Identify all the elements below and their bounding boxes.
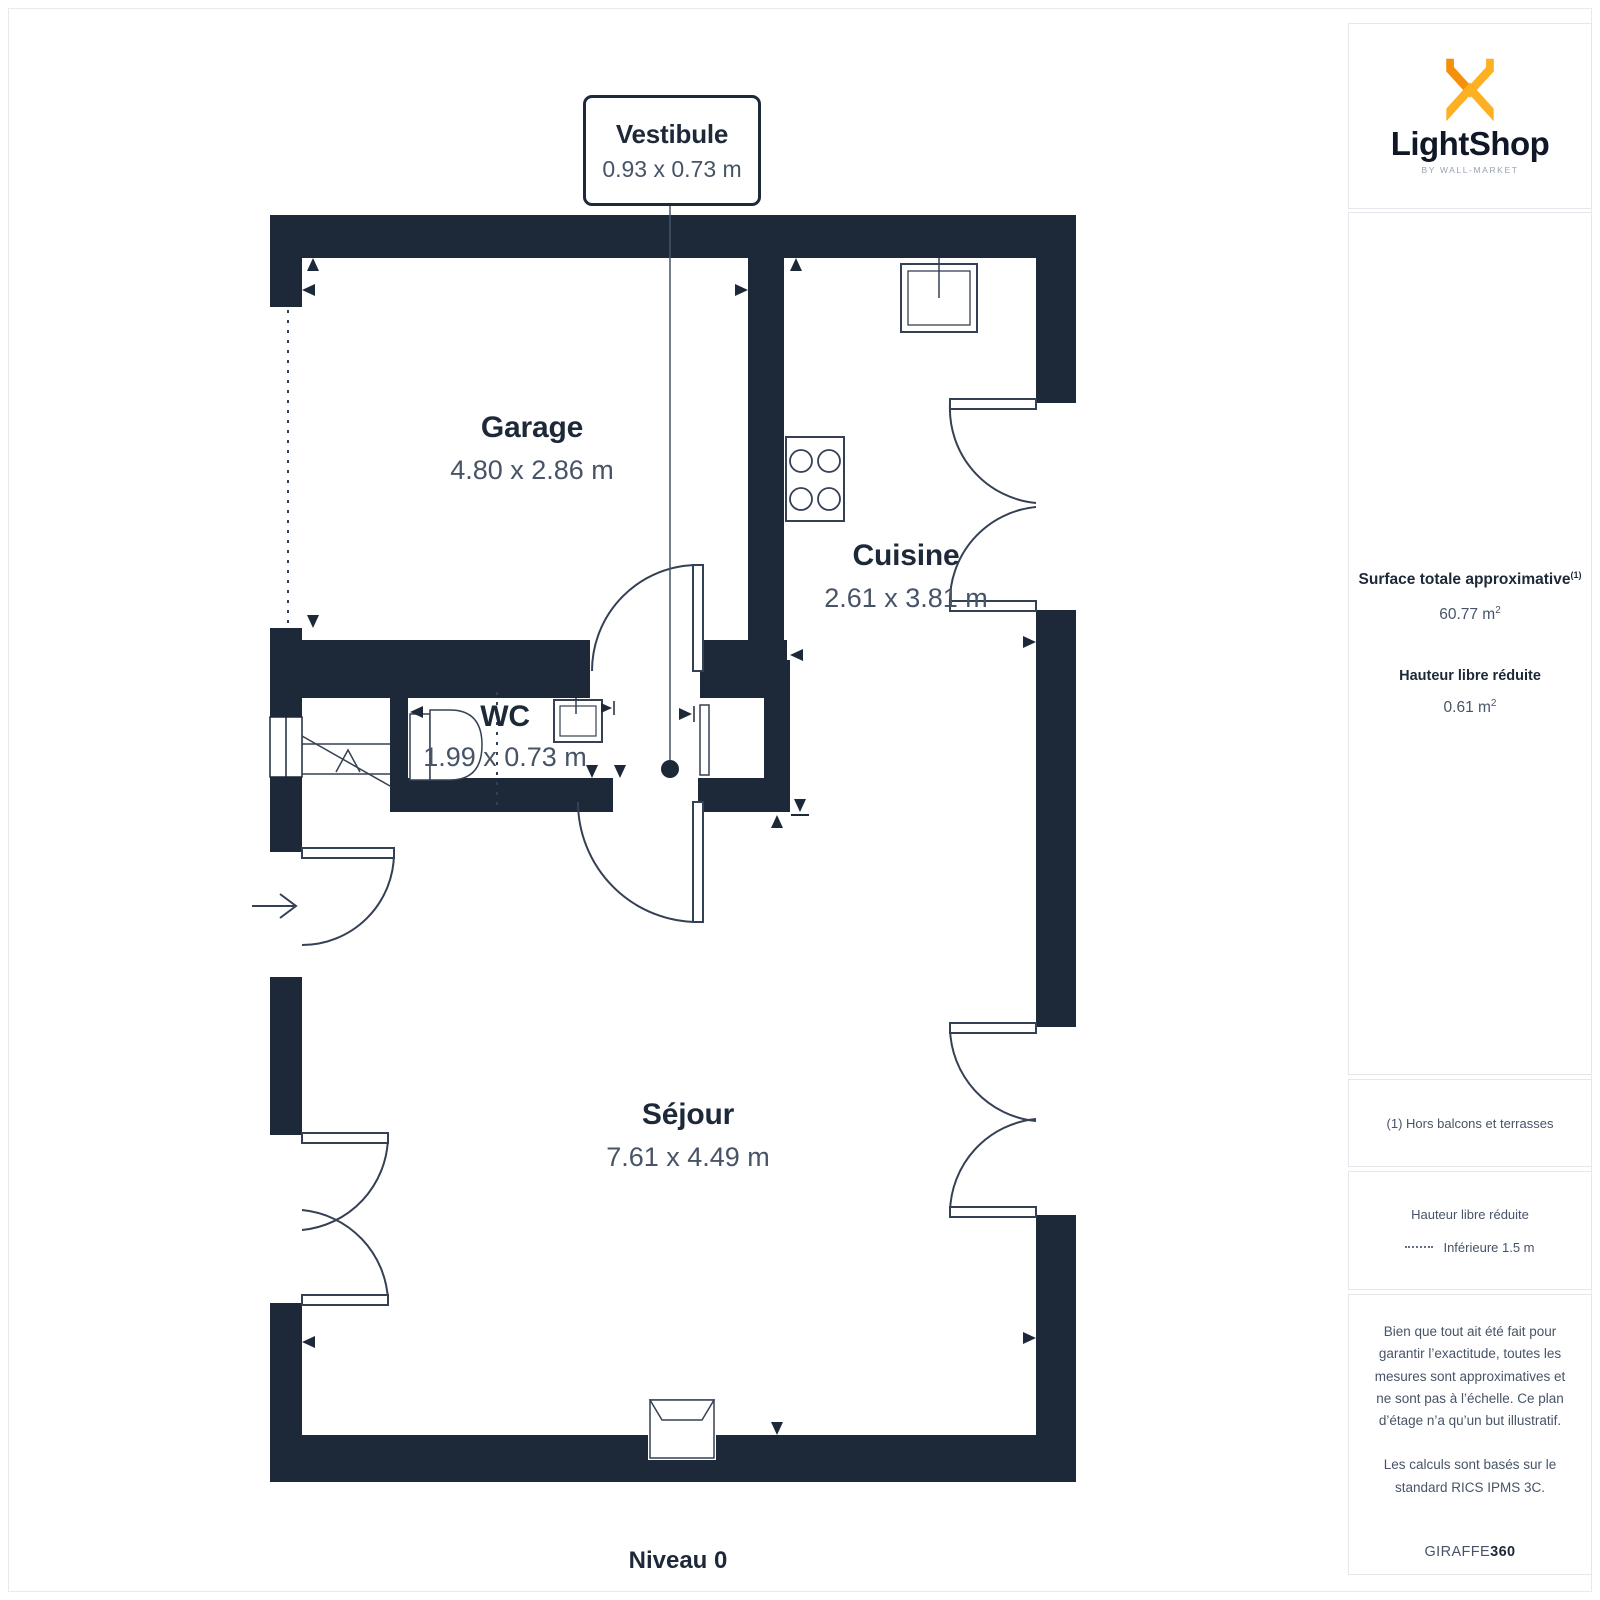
sidebar-disclaimer-box: Bien que tout ait été fait pour garantir… <box>1348 1294 1592 1575</box>
disclaimer-paragraph-2: Les calculs sont basés sur le standard R… <box>1367 1454 1573 1499</box>
legend-title: Hauteur libre réduite <box>1411 1207 1529 1222</box>
room-cuisine-label: Cuisine 2.61 x 3.81 m <box>756 539 1056 614</box>
room-title: Vestibule <box>616 119 728 150</box>
window-left <box>268 717 304 777</box>
room-dims: 2.61 x 3.81 m <box>756 583 1056 614</box>
level-label: Niveau 0 <box>528 1547 828 1575</box>
dotted-line-icon <box>1405 1246 1433 1248</box>
sidebar-footnote-box: (1) Hors balcons et terrasses <box>1348 1079 1592 1167</box>
surface-total-value: 60.77 m2 <box>1439 605 1501 624</box>
disclaimer-paragraph-1: Bien que tout ait été fait pour garantir… <box>1367 1321 1573 1432</box>
room-vestibule-label: Vestibule 0.93 x 0.73 m <box>583 95 761 206</box>
room-garage-label: Garage 4.80 x 2.86 m <box>382 411 682 486</box>
room-title: Cuisine <box>756 539 1056 573</box>
reduced-height-value: 0.61 m2 <box>1444 698 1497 717</box>
entrance-arrow-icon <box>252 894 296 918</box>
vestibule-leader <box>661 200 679 778</box>
brand-tagline: BY WALL-MARKET <box>1421 165 1518 175</box>
sidebar-summary-box: Surface totale approximative(1) 60.77 m2… <box>1348 212 1592 1075</box>
room-title: Garage <box>382 411 682 445</box>
floorplan-page: { "plan": { "level_label": "Niveau 0", "… <box>0 0 1600 1600</box>
room-title: WC <box>355 700 655 734</box>
legend-item: Inférieure 1.5 m <box>1443 1240 1534 1255</box>
surface-total-label: Surface totale approximative(1) <box>1359 570 1582 589</box>
fireplace <box>648 1398 716 1460</box>
kitchen-sink-icon <box>901 258 977 332</box>
lightshop-logo-icon <box>1427 57 1513 123</box>
giraffe360-brand: GIRAFFE360 <box>1367 1541 1573 1565</box>
stove-icon <box>786 437 844 521</box>
room-title: Séjour <box>538 1098 838 1132</box>
room-sejour-label: Séjour 7.61 x 4.49 m <box>538 1098 838 1173</box>
brand-name: LightShop <box>1391 125 1550 163</box>
reduced-height-label: Hauteur libre réduite <box>1399 668 1541 684</box>
room-wc-label: WC 1.99 x 0.73 m <box>355 700 655 773</box>
room-dims: 7.61 x 4.49 m <box>538 1142 838 1173</box>
room-dims: 0.93 x 0.73 m <box>602 156 741 183</box>
sidebar-legend-box: Hauteur libre réduite Inférieure 1.5 m <box>1348 1171 1592 1290</box>
sidebar-logo-box: LightShop BY WALL-MARKET <box>1348 23 1592 209</box>
footnote-text: (1) Hors balcons et terrasses <box>1387 1116 1554 1131</box>
room-dims: 1.99 x 0.73 m <box>355 742 655 773</box>
footnote-marker: (1) <box>1570 570 1581 580</box>
room-dims: 4.80 x 2.86 m <box>382 455 682 486</box>
